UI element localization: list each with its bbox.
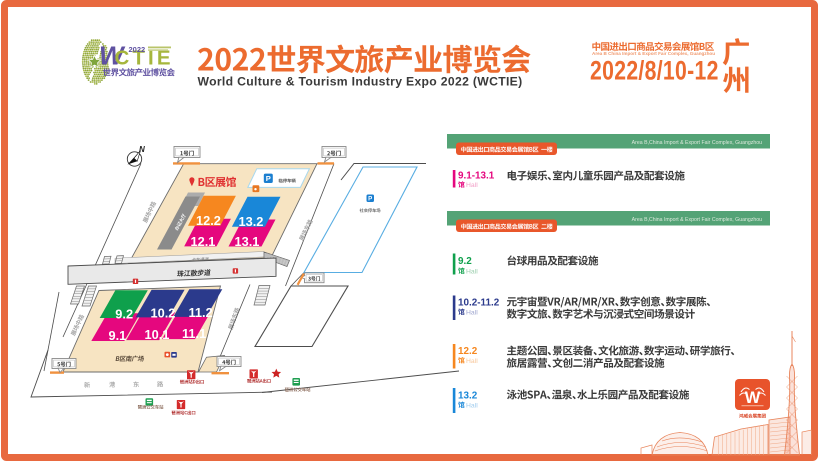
svg-text:2022: 2022 [129,45,146,54]
svg-text:13.2: 13.2 [239,214,264,229]
svg-text:10.2: 10.2 [151,306,176,321]
svg-text:12.1: 12.1 [191,234,216,249]
svg-text:12.2: 12.2 [458,346,478,357]
svg-text:9.1: 9.1 [109,328,127,343]
svg-text:9.2: 9.2 [458,256,472,267]
svg-text:13.2: 13.2 [458,391,478,402]
svg-text:Hall: Hall [466,358,478,365]
svg-text:10.1: 10.1 [145,327,170,342]
svg-text:Area B,China Import & Export F: Area B,China Import & Export Fair Comple… [632,140,762,146]
svg-text:12.2: 12.2 [196,213,221,228]
svg-text:10.2-11.2: 10.2-11.2 [458,298,500,309]
svg-text:11.2: 11.2 [189,305,213,320]
svg-text:Hall: Hall [466,182,478,189]
svg-text:W: W [745,389,761,407]
svg-text:13.1: 13.1 [235,234,260,249]
svg-text:Hall: Hall [466,402,478,409]
svg-text:9.1-13.1: 9.1-13.1 [458,171,495,182]
svg-text:Hall: Hall [466,268,478,275]
svg-text:Hall: Hall [466,309,478,316]
svg-text:9.2: 9.2 [115,306,133,321]
svg-text:P: P [368,196,372,203]
svg-text:Area B,China Import & Export F: Area B,China Import & Export Fair Comple… [632,217,762,223]
svg-text:P: P [266,174,271,183]
svg-text:Area B China Import & Export F: Area B China Import & Export Fair Comple… [592,51,715,56]
svg-text:World Culture & Tourism Indust: World Culture & Tourism Industry Expo 20… [198,75,523,89]
svg-text:11.1: 11.1 [182,326,206,341]
svg-text:2022/8/10-12: 2022/8/10-12 [590,56,719,86]
